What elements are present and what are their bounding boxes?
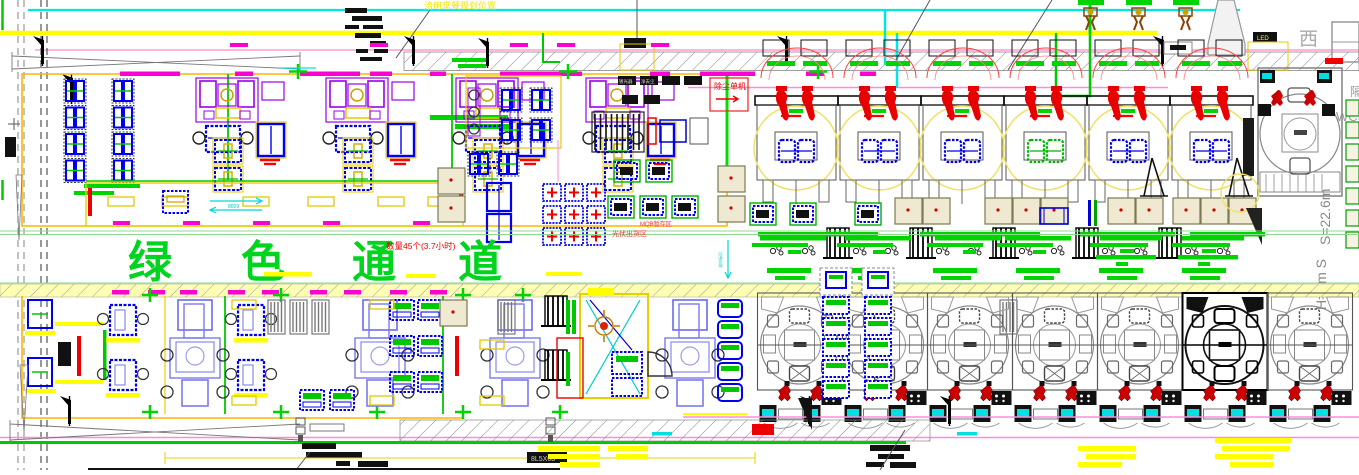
svg-text:除尘单机: 除尘单机 [714,81,746,91]
svg-text:S=22.6m: S=22.6m [1317,189,1333,245]
svg-text:绿: 绿 [128,238,173,287]
svg-text:镀光器: 镀光器 [619,78,633,85]
svg-text:净去尘: 净去尘 [641,78,655,85]
svg-text:隔: 隔 [1350,85,1359,99]
svg-text:LED: LED [1257,36,1269,42]
svg-text:8609: 8609 [228,204,239,210]
svg-text:道: 道 [458,238,502,287]
svg-text:洽用常餐规划位置: 洽用常餐规划位置 [424,0,496,11]
svg-text:数量45个(3.7小时): 数量45个(3.7小时) [386,241,456,251]
svg-text:光伏出货区: 光伏出货区 [612,229,647,238]
svg-text:西: 西 [1299,29,1318,50]
svg-text:流向标识: 流向标识 [717,252,723,268]
svg-text:色: 色 [241,238,285,287]
svg-text:MQB暂存区: MQB暂存区 [640,220,672,228]
